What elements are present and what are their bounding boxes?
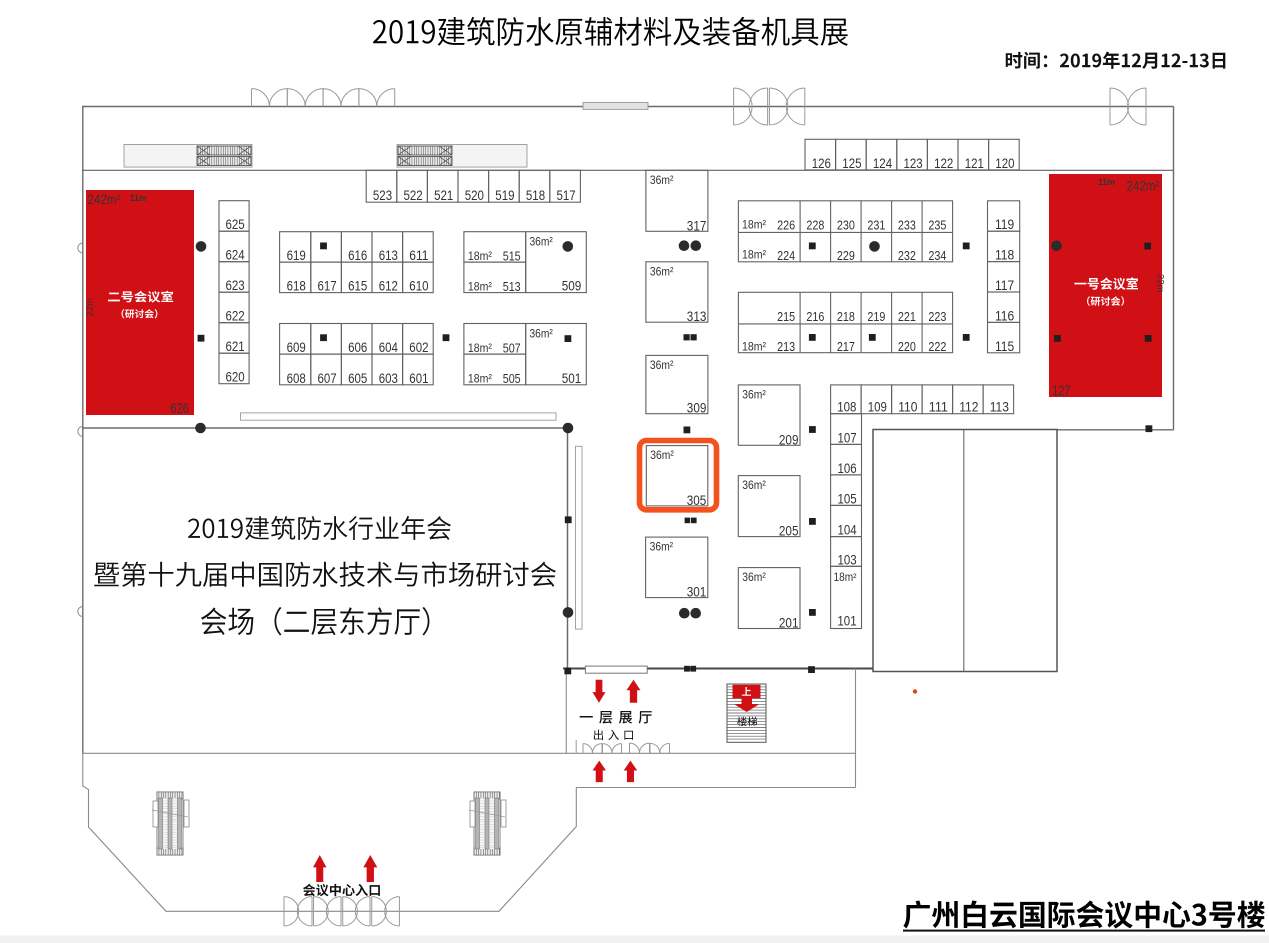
svg-text:230: 230 [837, 217, 855, 232]
svg-text:124: 124 [873, 156, 893, 171]
svg-text:122: 122 [934, 156, 953, 171]
svg-text:105: 105 [837, 491, 856, 506]
svg-text:219: 219 [867, 309, 885, 324]
svg-text:617: 617 [318, 279, 337, 294]
svg-text:604: 604 [379, 340, 399, 355]
svg-text:36m²: 36m² [530, 234, 553, 248]
svg-text:18m²: 18m² [742, 340, 766, 354]
svg-text:518: 518 [526, 188, 545, 203]
svg-text:216: 216 [806, 309, 824, 324]
svg-text:120: 120 [995, 156, 1014, 171]
svg-text:121: 121 [965, 156, 984, 171]
svg-text:220: 220 [898, 339, 916, 354]
svg-text:242m²: 242m² [1127, 177, 1160, 193]
svg-text:602: 602 [409, 340, 428, 355]
svg-text:18m²: 18m² [468, 279, 492, 293]
svg-text:209: 209 [779, 432, 799, 447]
svg-text:111: 111 [929, 400, 948, 415]
svg-text:619: 619 [287, 248, 306, 263]
svg-text:11m: 11m [130, 193, 147, 204]
svg-text:509: 509 [562, 279, 582, 294]
svg-text:36m²: 36m² [530, 326, 553, 340]
svg-text:217: 217 [837, 339, 855, 354]
svg-text:521: 521 [434, 188, 453, 203]
svg-text:228: 228 [806, 217, 824, 232]
svg-text:109: 109 [868, 400, 887, 415]
svg-text:104: 104 [837, 523, 857, 538]
svg-text:505: 505 [503, 372, 521, 386]
svg-text:222: 222 [928, 339, 946, 354]
svg-text:607: 607 [318, 371, 337, 386]
svg-text:609: 609 [287, 340, 306, 355]
svg-text:107: 107 [837, 430, 856, 445]
svg-text:18m²: 18m² [468, 372, 492, 386]
svg-text:11m: 11m [1098, 177, 1115, 188]
svg-text:106: 106 [837, 461, 856, 476]
svg-text:36m²: 36m² [742, 478, 766, 492]
svg-text:36m²: 36m² [742, 570, 766, 584]
svg-text:108: 108 [837, 400, 856, 415]
svg-text:125: 125 [842, 156, 861, 171]
svg-text:234: 234 [928, 248, 946, 263]
svg-text:625: 625 [225, 217, 244, 232]
svg-text:18m²: 18m² [468, 341, 492, 355]
svg-text:113: 113 [990, 400, 1009, 415]
svg-text:221: 221 [898, 309, 916, 324]
svg-text:513: 513 [503, 280, 521, 294]
svg-text:501: 501 [562, 371, 582, 386]
svg-text:621: 621 [225, 339, 244, 354]
svg-text:232: 232 [898, 248, 916, 263]
svg-text:519: 519 [495, 188, 514, 203]
svg-text:616: 616 [348, 248, 367, 263]
svg-text:18m²: 18m² [468, 249, 492, 263]
svg-text:231: 231 [867, 217, 885, 232]
svg-text:22m: 22m [85, 298, 96, 317]
svg-text:201: 201 [779, 616, 799, 631]
svg-text:117: 117 [995, 278, 1014, 293]
svg-text:115: 115 [995, 339, 1014, 354]
svg-text:18m²: 18m² [742, 248, 766, 262]
svg-text:213: 213 [777, 339, 795, 354]
svg-text:119: 119 [995, 217, 1014, 232]
svg-text:223: 223 [928, 309, 946, 324]
svg-text:623: 623 [225, 278, 244, 293]
svg-text:618: 618 [287, 279, 306, 294]
svg-text:522: 522 [404, 188, 423, 203]
svg-text:603: 603 [379, 371, 398, 386]
svg-text:608: 608 [287, 371, 306, 386]
svg-text:18m²: 18m² [742, 218, 766, 232]
svg-text:615: 615 [348, 279, 367, 294]
svg-text:622: 622 [225, 309, 244, 324]
svg-text:18m²: 18m² [834, 572, 857, 584]
svg-text:36m²: 36m² [650, 358, 674, 372]
svg-text:612: 612 [379, 279, 398, 294]
svg-text:215: 215 [777, 309, 795, 324]
svg-text:22m: 22m [1155, 274, 1166, 293]
svg-text:101: 101 [837, 614, 856, 629]
svg-text:103: 103 [837, 552, 856, 567]
svg-text:218: 218 [837, 309, 855, 324]
svg-text:229: 229 [837, 248, 855, 263]
svg-text:313: 313 [687, 309, 707, 324]
svg-text:624: 624 [225, 248, 245, 263]
svg-text:613: 613 [379, 248, 398, 263]
svg-text:620: 620 [225, 370, 244, 385]
svg-text:610: 610 [409, 279, 428, 294]
svg-text:242m²: 242m² [88, 191, 121, 207]
svg-text:110: 110 [898, 400, 917, 415]
svg-text:520: 520 [465, 188, 484, 203]
svg-text:605: 605 [348, 371, 367, 386]
svg-text:606: 606 [348, 340, 367, 355]
svg-text:601: 601 [409, 371, 428, 386]
svg-text:123: 123 [904, 156, 923, 171]
svg-text:233: 233 [898, 217, 916, 232]
svg-text:36m²: 36m² [742, 387, 766, 401]
svg-text:305: 305 [687, 493, 707, 508]
svg-text:226: 226 [777, 217, 795, 232]
svg-text:36m²: 36m² [650, 540, 674, 554]
svg-text:127: 127 [1052, 383, 1070, 399]
svg-text:317: 317 [687, 218, 707, 233]
svg-text:507: 507 [503, 341, 521, 355]
svg-text:626: 626 [170, 401, 189, 417]
svg-text:517: 517 [557, 188, 576, 203]
svg-text:116: 116 [995, 308, 1014, 323]
svg-text:301: 301 [687, 585, 707, 600]
svg-text:36m²: 36m² [650, 173, 674, 187]
svg-text:36m²: 36m² [650, 264, 674, 278]
svg-text:515: 515 [503, 249, 521, 263]
svg-text:224: 224 [777, 248, 795, 263]
svg-text:205: 205 [779, 524, 799, 539]
svg-text:112: 112 [959, 400, 978, 415]
svg-text:309: 309 [687, 401, 707, 416]
svg-text:126: 126 [812, 156, 831, 171]
svg-text:36m²: 36m² [650, 448, 674, 462]
svg-text:235: 235 [928, 217, 946, 232]
svg-text:118: 118 [995, 248, 1014, 263]
svg-text:611: 611 [409, 248, 428, 263]
svg-text:523: 523 [373, 188, 392, 203]
